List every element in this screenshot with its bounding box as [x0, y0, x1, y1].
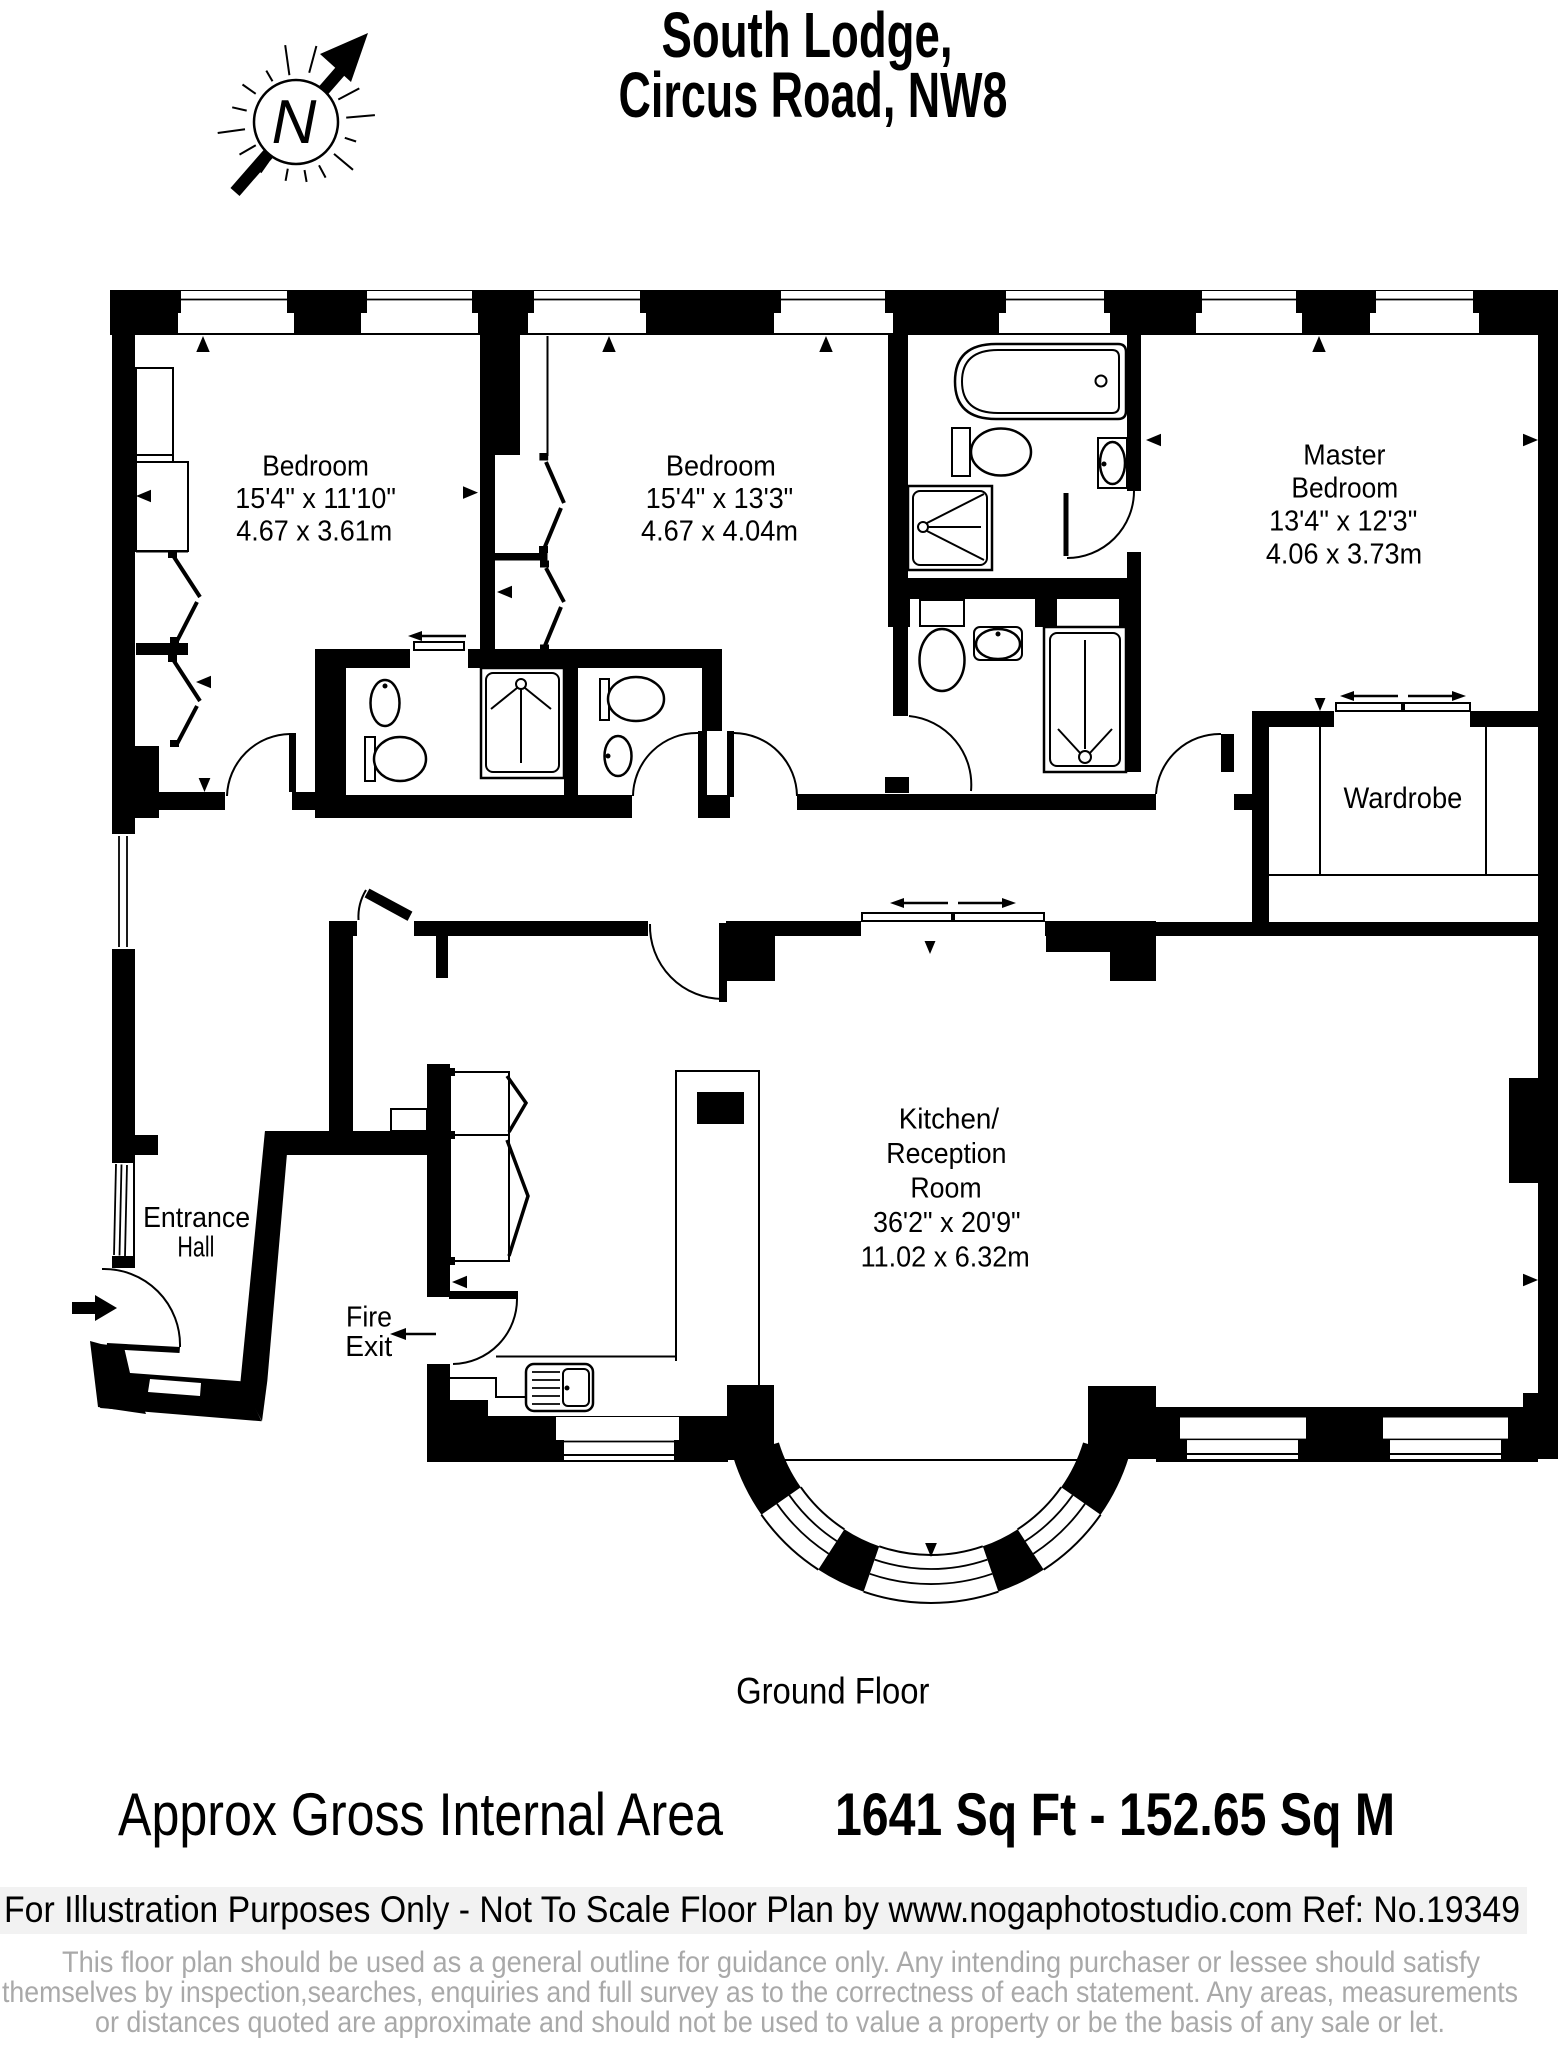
svg-text:Bedroom: Bedroom: [262, 450, 369, 482]
svg-text:Fire: Fire: [346, 1301, 392, 1333]
svg-text:Bedroom: Bedroom: [666, 450, 776, 482]
svg-text:Room: Room: [910, 1173, 981, 1205]
svg-text:Hall: Hall: [177, 1232, 214, 1264]
svg-text:Kitchen/: Kitchen/: [899, 1104, 1000, 1136]
svg-text:themselves by inspection,searc: themselves by inspection,searches, enqui…: [2, 1976, 1518, 2009]
svg-text:36'2" x 20'9": 36'2" x 20'9": [873, 1207, 1021, 1239]
svg-text:Reception: Reception: [886, 1138, 1006, 1170]
svg-text:Circus Road, NW8: Circus Road, NW8: [619, 59, 1008, 131]
svg-text:13'4" x 12'3": 13'4" x 12'3": [1269, 505, 1417, 537]
svg-text:N: N: [272, 88, 317, 157]
svg-text:Approx Gross Internal Area: Approx Gross Internal Area: [118, 1781, 724, 1848]
svg-text:1641 Sq Ft - 152.65 Sq M: 1641 Sq Ft - 152.65 Sq M: [835, 1781, 1395, 1848]
svg-text:15'4" x 11'10": 15'4" x 11'10": [235, 483, 396, 515]
svg-text:Bedroom: Bedroom: [1291, 472, 1398, 504]
svg-text:4.06 x 3.73m: 4.06 x 3.73m: [1266, 538, 1422, 570]
svg-text:Entrance: Entrance: [143, 1202, 250, 1234]
svg-text:15'4" x 13'3": 15'4" x 13'3": [646, 483, 793, 515]
svg-text:or distances quoted are approx: or distances quoted are approximate and …: [95, 2006, 1445, 2039]
svg-text:11.02 x 6.32m: 11.02 x 6.32m: [861, 1242, 1030, 1274]
svg-text:Master: Master: [1303, 439, 1386, 471]
svg-text:This floor plan should be used: This floor plan should be used as a gene…: [62, 1946, 1480, 1979]
svg-text:For Illustration Purposes Only: For Illustration Purposes Only - Not To …: [4, 1889, 1520, 1930]
svg-text:Ground Floor: Ground Floor: [736, 1670, 929, 1712]
svg-text:4.67 x 3.61m: 4.67 x 3.61m: [236, 515, 392, 547]
svg-text:Exit: Exit: [345, 1331, 392, 1363]
svg-text:Wardrobe: Wardrobe: [1344, 782, 1463, 815]
svg-text:4.67 x 4.04m: 4.67 x 4.04m: [641, 515, 798, 547]
